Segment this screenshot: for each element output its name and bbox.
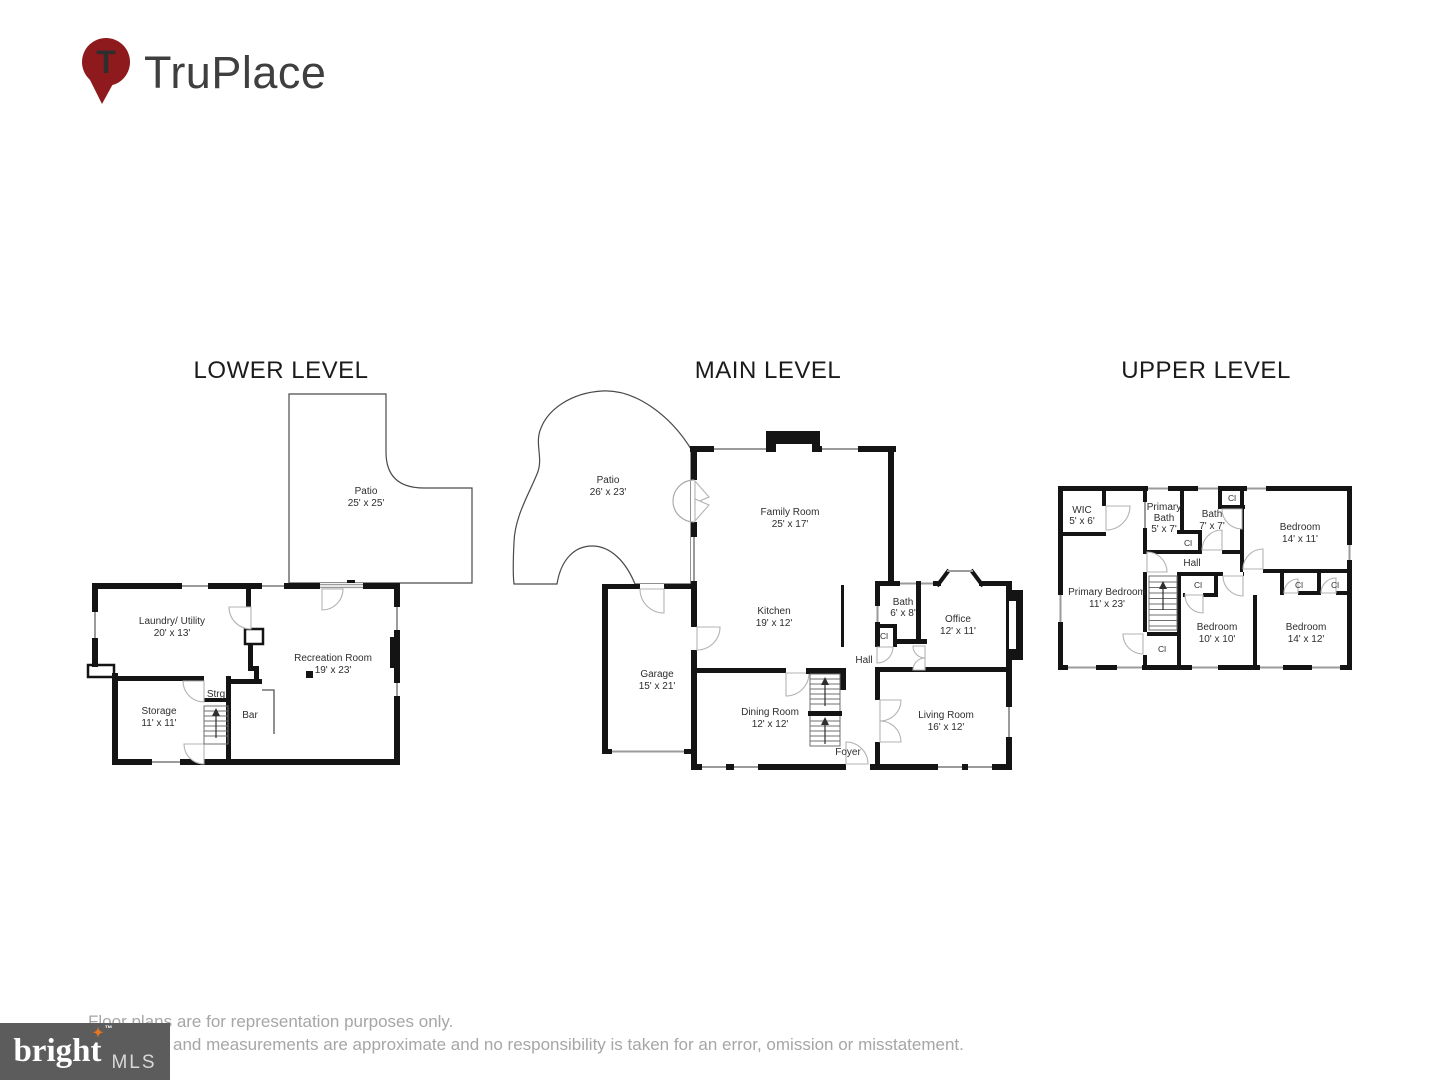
room-label-office: Office xyxy=(945,614,971,625)
floorplan-sheet: T TruPlace LOWER LEVEL MAIN LEVEL UPPER … xyxy=(0,0,1440,1080)
room-dims-wic: 5' x 6' xyxy=(1069,516,1095,527)
main-stairs xyxy=(806,668,846,746)
room-label-cl-main: Cl xyxy=(880,631,888,641)
bright-mls-brand: bright ✦ ™ xyxy=(13,1035,101,1068)
bright-mls-logo: bright ✦ ™ MLS xyxy=(0,1023,170,1080)
room-label-storage: Storage xyxy=(141,706,176,717)
room-dims-garage: 15' x 21' xyxy=(639,681,676,692)
room-dims-family: 25' x 17' xyxy=(772,519,809,530)
floorplans-svg: Patio 25' x 25' Laundry/ Utility 20' x 1… xyxy=(0,0,1440,1080)
room-label-hall-main: Hall xyxy=(855,655,872,666)
room-label-family: Family Room xyxy=(761,507,820,518)
support-post xyxy=(306,671,313,678)
room-label-cl-br1: Cl xyxy=(1295,580,1303,590)
room-dims-bedroom-r: 14' x 11' xyxy=(1282,534,1318,545)
bar-counter xyxy=(262,690,274,734)
room-dims-patio: 25' x 25' xyxy=(348,498,385,509)
room-label-dining: Dining Room xyxy=(741,707,799,718)
bright-mls-suffix: MLS xyxy=(111,1052,156,1080)
room-dims-bath-main: 6' x 8' xyxy=(890,608,916,619)
room-label-cl-bath: Cl xyxy=(1228,493,1236,503)
room-dims-living: 16' x 12' xyxy=(928,722,965,733)
room-label-cl-stairs: Cl xyxy=(1158,644,1166,654)
room-label-cl-br2: Cl xyxy=(1331,580,1339,590)
bright-mls-wordmark: bright xyxy=(13,1033,101,1069)
room-label-strg: Strg xyxy=(207,689,225,700)
room-dims-office: 12' x 11' xyxy=(940,626,976,637)
lower-patio-outline xyxy=(289,394,472,583)
upper-stairs xyxy=(1149,576,1177,630)
room-label-wic: WIC xyxy=(1072,505,1091,516)
disclaimer-line-2: and measurements are approximate and no … xyxy=(173,1035,964,1055)
room-label-primary-bath-2: Bath xyxy=(1154,513,1175,524)
room-label-cl-mid: Cl xyxy=(1184,538,1192,548)
room-label-primary-bedroom: Primary Bedroom xyxy=(1068,587,1146,598)
room-dims-primary-bedroom: 11' x 23' xyxy=(1089,599,1125,610)
room-dims-patio-main: 26' x 23' xyxy=(590,487,627,498)
room-label-foyer: Foyer xyxy=(835,747,861,758)
room-dims-bath-upper: 7' x 7' xyxy=(1199,521,1225,532)
room-label-bath-upper: Bath xyxy=(1202,509,1223,520)
room-label-primary-bath-1: Primary xyxy=(1147,502,1181,513)
room-label-patio-main: Patio xyxy=(597,475,620,486)
lower-level-plan: Patio 25' x 25' Laundry/ Utility 20' x 1… xyxy=(88,394,472,765)
room-dims-kitchen: 19' x 12' xyxy=(756,618,793,629)
room-dims-laundry: 20' x 13' xyxy=(154,628,191,639)
room-label-kitchen: Kitchen xyxy=(757,606,790,617)
room-label-living: Living Room xyxy=(918,710,974,721)
room-dims-bedroom-br: 14' x 12' xyxy=(1288,634,1325,645)
room-dims-bedroom-mid: 10' x 10' xyxy=(1199,634,1236,645)
room-dims-primary-bath: 5' x 7' xyxy=(1151,524,1177,535)
room-label-bar: Bar xyxy=(242,710,258,721)
room-label-bedroom-r: Bedroom xyxy=(1280,522,1321,533)
room-dims-storage: 11' x 11' xyxy=(141,718,176,729)
upper-level-plan: WIC 5' x 6' Primary Bath 5' x 7' Bath 7'… xyxy=(1058,486,1352,670)
room-label-cl-bed-mid: Cl xyxy=(1194,580,1202,590)
room-label-recreation: Recreation Room xyxy=(294,653,372,664)
room-label-bath-main: Bath xyxy=(893,597,914,608)
room-label-laundry: Laundry/ Utility xyxy=(139,616,205,627)
bright-mls-tm: ™ xyxy=(104,1025,112,1033)
lower-doors xyxy=(183,589,343,764)
room-label-hall-upper: Hall xyxy=(1183,558,1200,569)
bright-mls-star-icon: ✦ xyxy=(93,1026,104,1039)
room-label-garage: Garage xyxy=(640,669,674,680)
room-label-bedroom-br: Bedroom xyxy=(1286,622,1327,633)
room-dims-recreation: 19' x 23' xyxy=(315,665,352,676)
main-level-plan: Patio 26' x 23' Family Room 25' x 17' Ki… xyxy=(513,391,1023,770)
room-label-patio: Patio xyxy=(355,486,378,497)
lower-stairs xyxy=(204,706,228,744)
room-dims-dining: 12' x 12' xyxy=(752,719,789,730)
room-label-bedroom-mid: Bedroom xyxy=(1197,622,1238,633)
